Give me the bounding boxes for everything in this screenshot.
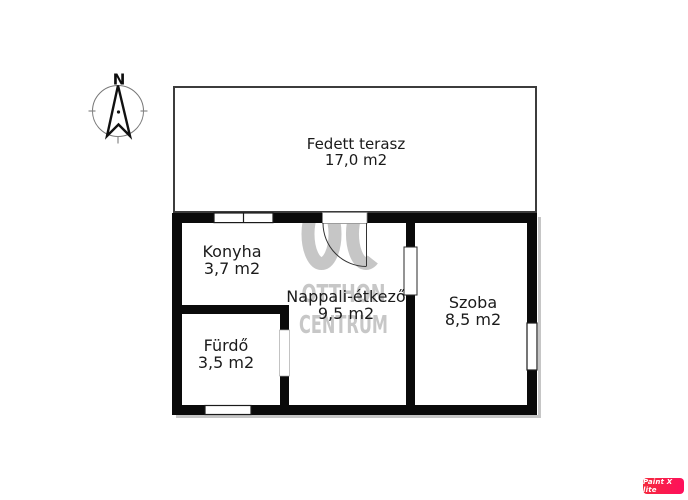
room-area: 3,7 m2 [202,260,261,277]
szoba-door-opening [404,247,417,295]
room-name: Fürdő [198,337,254,354]
floorplan-graphics: OTTHON CENTRUM [0,0,688,500]
compass-center-dot [117,110,120,113]
wall-right [527,213,537,415]
room-area: 3,5 m2 [198,354,254,371]
room-area: 17,0 m2 [307,152,405,168]
room-label-konyha: Konyha 3,7 m2 [202,243,261,277]
floorplan-canvas: OTTHON CENTRUM [0,0,688,500]
room-area: 9,5 m2 [286,305,405,322]
room-label-szoba: Szoba 8,5 m2 [445,294,501,328]
room-area: 8,5 m2 [445,311,501,328]
window-szoba [527,323,537,370]
paint-x-lite-badge: Paint X lite [643,478,684,494]
room-label-furdo: Fürdő 3,5 m2 [198,337,254,371]
wall-szoba-divider [406,213,415,415]
room-name: Konyha [202,243,261,260]
room-label-nappali: Nappali-étkező 9,5 m2 [286,288,405,322]
wall-furdo-top [172,305,289,314]
room-name: Fedett terasz [307,136,405,152]
room-name: Szoba [445,294,501,311]
compass-north-label: N [113,71,126,89]
window-furdo [205,406,251,415]
room-name: Nappali-étkező [286,288,405,305]
room-label-fedett-terasz: Fedett terasz 17,0 m2 [307,136,405,168]
compass: N [89,71,148,144]
terrace-door-opening [323,213,368,224]
furdo-door-opening [280,330,290,376]
